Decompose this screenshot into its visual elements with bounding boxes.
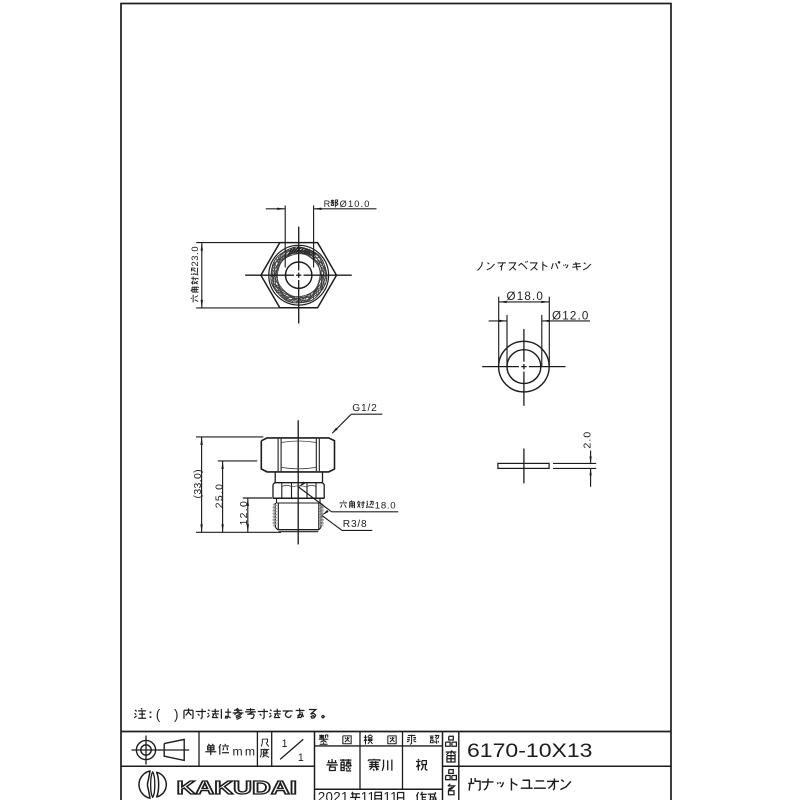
svg-text:Ø12.0: Ø12.0 [552, 310, 590, 323]
svg-text:(: ( [156, 707, 161, 722]
svg-text:12.0: 12.0 [239, 500, 250, 525]
svg-text:2021: 2021 [318, 789, 349, 800]
svg-text:2.0: 2.0 [582, 431, 593, 449]
svg-text:R3/8: R3/8 [343, 519, 368, 530]
svg-text:1: 1 [282, 738, 288, 750]
svg-text:18.0: 18.0 [375, 500, 396, 511]
svg-text:Ø18.0: Ø18.0 [507, 290, 545, 303]
svg-text:mm: mm [233, 744, 258, 758]
svg-text:): ) [174, 707, 179, 722]
svg-text:11: 11 [361, 789, 376, 800]
svg-text:25.0: 25.0 [214, 483, 225, 508]
svg-text:1: 1 [298, 752, 304, 764]
svg-text:Ø10.0: Ø10.0 [340, 199, 371, 209]
svg-text:6170-10X13: 6170-10X13 [467, 740, 593, 762]
svg-text:23.0: 23.0 [189, 246, 200, 267]
svg-text:(33.0): (33.0) [193, 469, 204, 499]
svg-text::: : [148, 707, 152, 721]
svg-text:G1/2: G1/2 [352, 403, 377, 414]
svg-text:KAKUDAI: KAKUDAI [177, 777, 298, 798]
svg-text:R: R [324, 199, 331, 209]
svg-text:11: 11 [383, 789, 398, 800]
